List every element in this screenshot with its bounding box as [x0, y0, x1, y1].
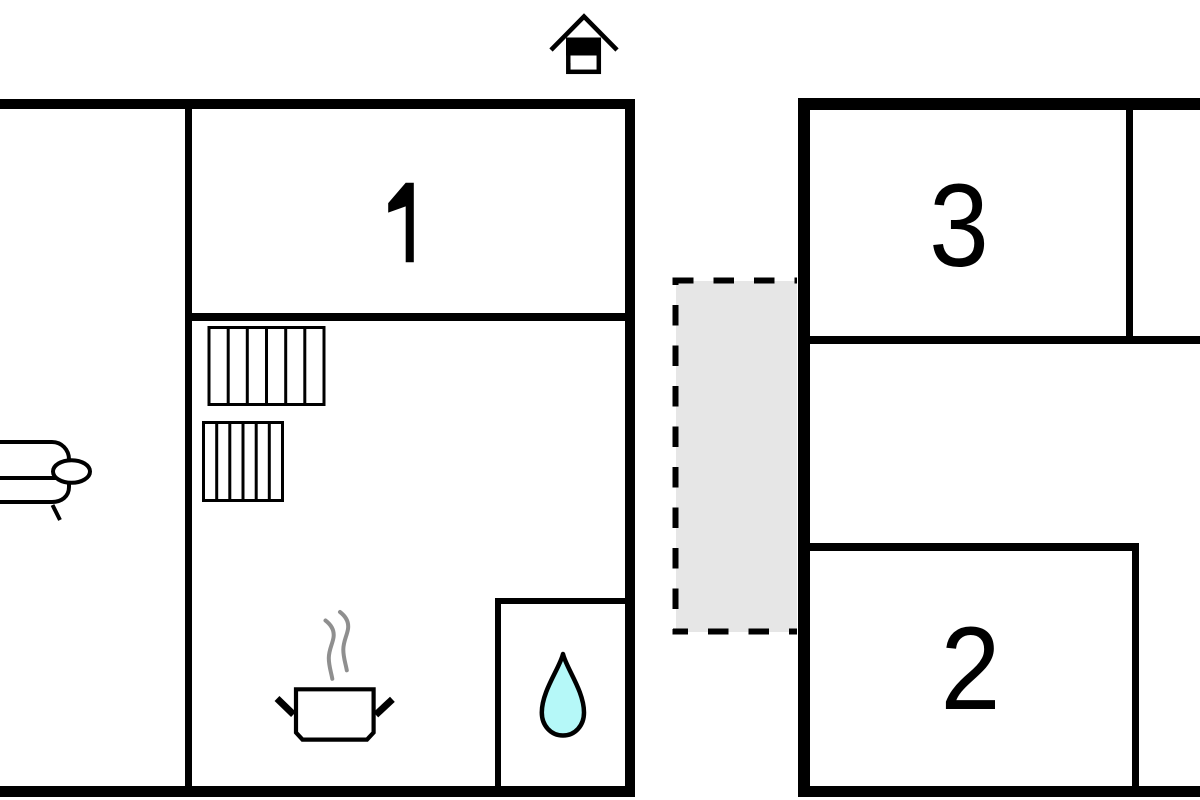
svg-text:3: 3	[929, 159, 989, 291]
svg-text:2: 2	[941, 602, 1001, 734]
